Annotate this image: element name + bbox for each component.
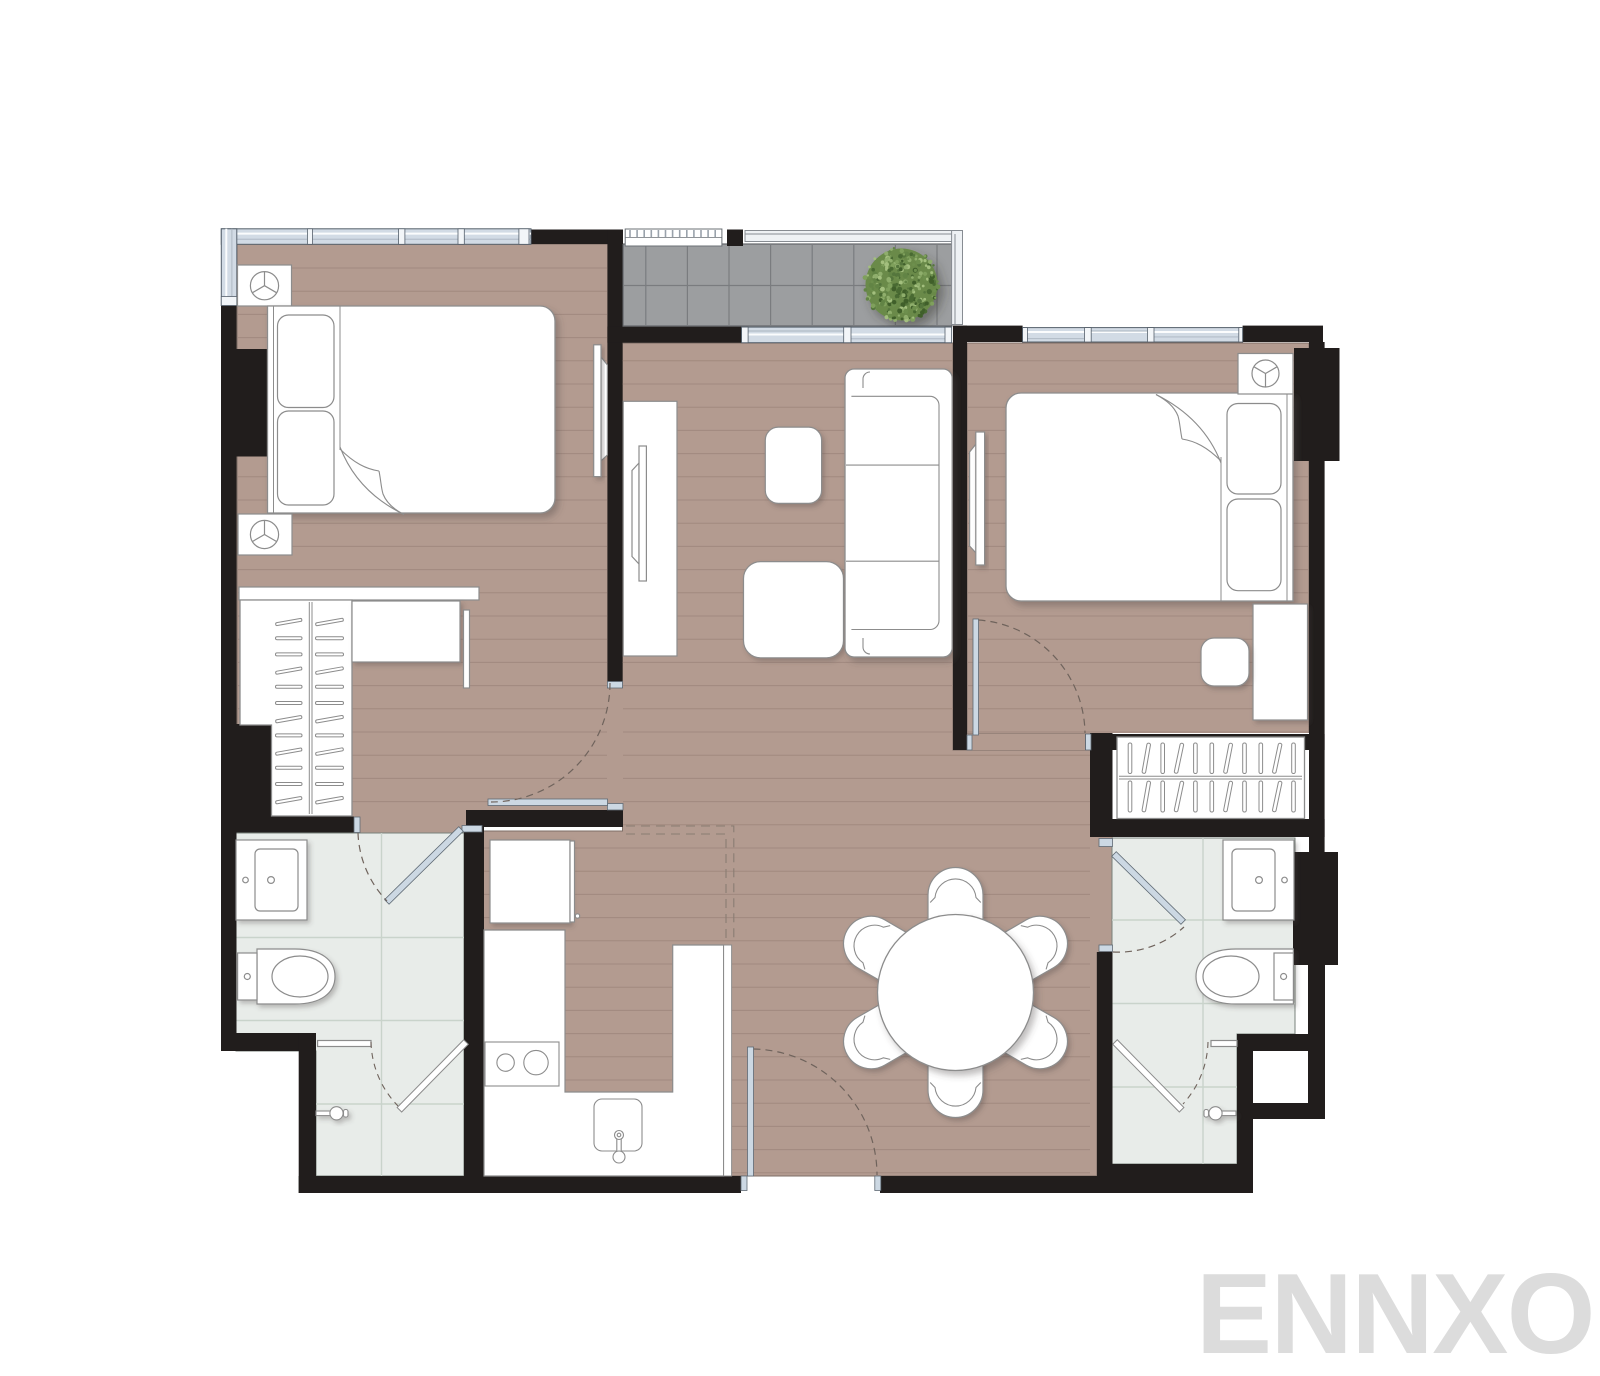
svg-text:ENNXO: ENNXO (1196, 1251, 1594, 1376)
